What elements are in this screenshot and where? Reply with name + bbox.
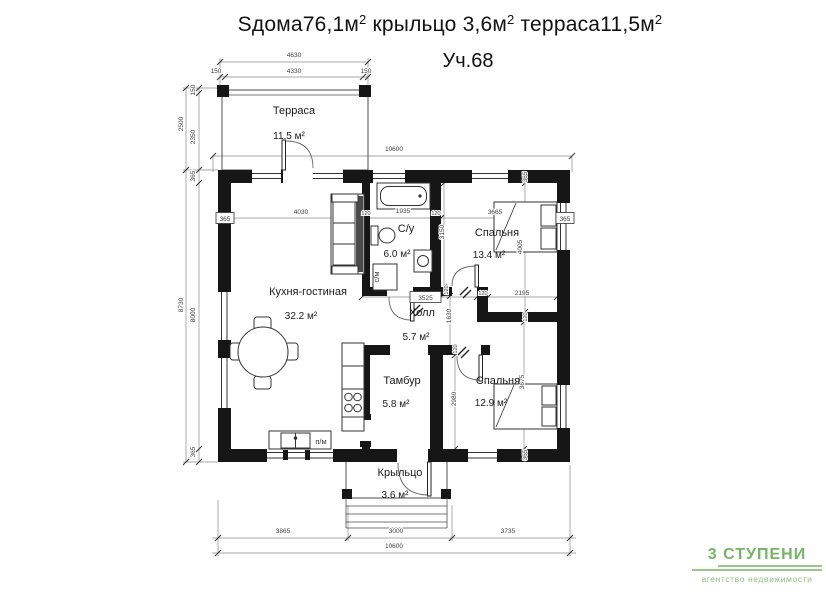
porch-steps — [346, 498, 447, 528]
dim-bedroom1-height: 3150 — [439, 224, 446, 239]
kitchen-counter — [342, 343, 364, 431]
dim-wall-bottom-right: 365 — [522, 449, 529, 460]
room-label-terrace: Терраса — [273, 105, 316, 117]
dim-left-inner: 8000 — [190, 307, 197, 322]
dim-bedroom1-height2: 4005 — [517, 239, 524, 254]
agency-logo: 3 СТУПЕНИ агентство недвижимости — [692, 546, 822, 584]
terrace-door — [282, 140, 313, 170]
dimension-lines — [183, 58, 576, 556]
porch-post — [342, 489, 352, 499]
pillow — [542, 386, 556, 405]
dim-120-d: 120 — [444, 285, 450, 294]
room-area-kitchen: 32.2 м² — [285, 311, 318, 322]
dim-terrace-mid: 4330 — [287, 68, 302, 75]
room-label-bedroom1: Спальня — [475, 227, 519, 239]
dim-bedroom1-width: 3665 — [488, 209, 503, 216]
room-label-tambour: Тамбур — [383, 375, 420, 387]
pillow — [541, 205, 556, 226]
room-label-bedroom2: Спальня — [476, 375, 520, 387]
dining-table — [230, 317, 298, 389]
dim-bottom-a: 3865 — [276, 528, 291, 535]
dim-bath-width: 1935 — [396, 208, 411, 215]
stove-burner — [354, 404, 362, 412]
pillow — [542, 407, 556, 426]
dim-left-total: 8730 — [178, 297, 185, 312]
room-area-tambour: 5.8 м² — [383, 399, 411, 410]
dim-left-wall-top: 365 — [190, 170, 197, 181]
floor-plan-page: Sдома76,1м2 крыльцо 3,6м2 терраса11,5м2 … — [0, 0, 826, 594]
window-mullion — [305, 450, 310, 460]
dimension-ticks — [183, 59, 575, 556]
room-label-hall: Холл — [409, 307, 435, 319]
room-area-bathroom: 6.0 м² — [384, 249, 412, 260]
dim-wall-top-right: 365 — [522, 171, 529, 182]
chair — [254, 376, 271, 389]
room-area-bedroom2: 12.9 м² — [475, 398, 508, 409]
dim-terrace-right: 150 — [361, 68, 372, 75]
dim-120-e: 120 — [453, 344, 459, 353]
dim-120-b: 120 — [431, 211, 440, 217]
terrace-outline — [217, 85, 371, 170]
dim-left-wall-bottom: 365 — [190, 446, 197, 457]
terrace-door-opening — [283, 170, 313, 184]
dim-terrace-left: 150 — [211, 68, 222, 75]
stove-burner — [354, 393, 362, 401]
window-mullion — [283, 450, 288, 460]
dim-120-c: 120 — [478, 291, 487, 297]
agency-logo-subtitle: агентство недвижимости — [692, 574, 822, 584]
bedroom1-door — [452, 265, 479, 287]
room-label-kitchen: Кухня-гостиная — [269, 286, 347, 298]
sofa — [331, 194, 364, 274]
agency-logo-name: 3 СТУПЕНИ — [692, 546, 822, 564]
dim-bottom-overall: 10600 — [385, 543, 403, 550]
dim-120-f: 120 — [523, 312, 529, 321]
toilet — [371, 226, 395, 245]
dim-wall-right: 365 — [560, 216, 571, 223]
dim-bottom-c: 3735 — [501, 528, 516, 535]
label-dishwasher: п/м — [315, 437, 326, 446]
room-area-bedroom1: 13.4 м² — [473, 250, 506, 261]
label-washer: с/м — [372, 272, 381, 283]
dim-120-a: 120 — [361, 211, 370, 217]
room-label-bathroom: С/у — [398, 223, 415, 235]
washbasin — [414, 250, 432, 272]
dim-bedroom1-south: 2195 — [515, 290, 530, 297]
dim-terrace-height: 2500 — [178, 116, 185, 131]
dim-hall-width: 3525 — [418, 295, 433, 302]
dim-top-overall: 10600 — [385, 146, 403, 153]
dim-terrace-inner: 2350 — [190, 129, 197, 144]
room-label-porch: Крыльцо — [378, 467, 423, 479]
dim-bottom-b: 3000 — [389, 528, 404, 535]
floor-plan-drawing: 365 365 3525 4630 150 4330 150 10600 250… — [0, 0, 826, 594]
dim-kitchen-width: 4030 — [294, 209, 309, 216]
logo-step-line — [692, 569, 822, 571]
entry-door-opening — [397, 449, 428, 463]
room-area-terrace: 11.5 м² — [273, 131, 305, 142]
logo-step-line — [718, 565, 822, 567]
pillow — [541, 228, 556, 249]
terrace-post — [359, 85, 371, 97]
room-area-porch: 3.6 м² — [382, 490, 410, 501]
dim-hall-height: 1630 — [446, 308, 453, 323]
stove-burner — [345, 404, 353, 412]
bathtub — [377, 183, 430, 209]
dim-wall-left: 365 — [220, 216, 231, 223]
porch-post — [441, 489, 451, 499]
dim-bedroom2-height: 2980 — [451, 391, 458, 406]
stove-burner — [345, 393, 353, 401]
terrace-post — [217, 85, 229, 97]
dim-terrace-offset: 150 — [190, 84, 197, 95]
dim-terrace-total: 4630 — [287, 52, 302, 59]
room-area-hall: 5.7 м² — [403, 332, 431, 343]
